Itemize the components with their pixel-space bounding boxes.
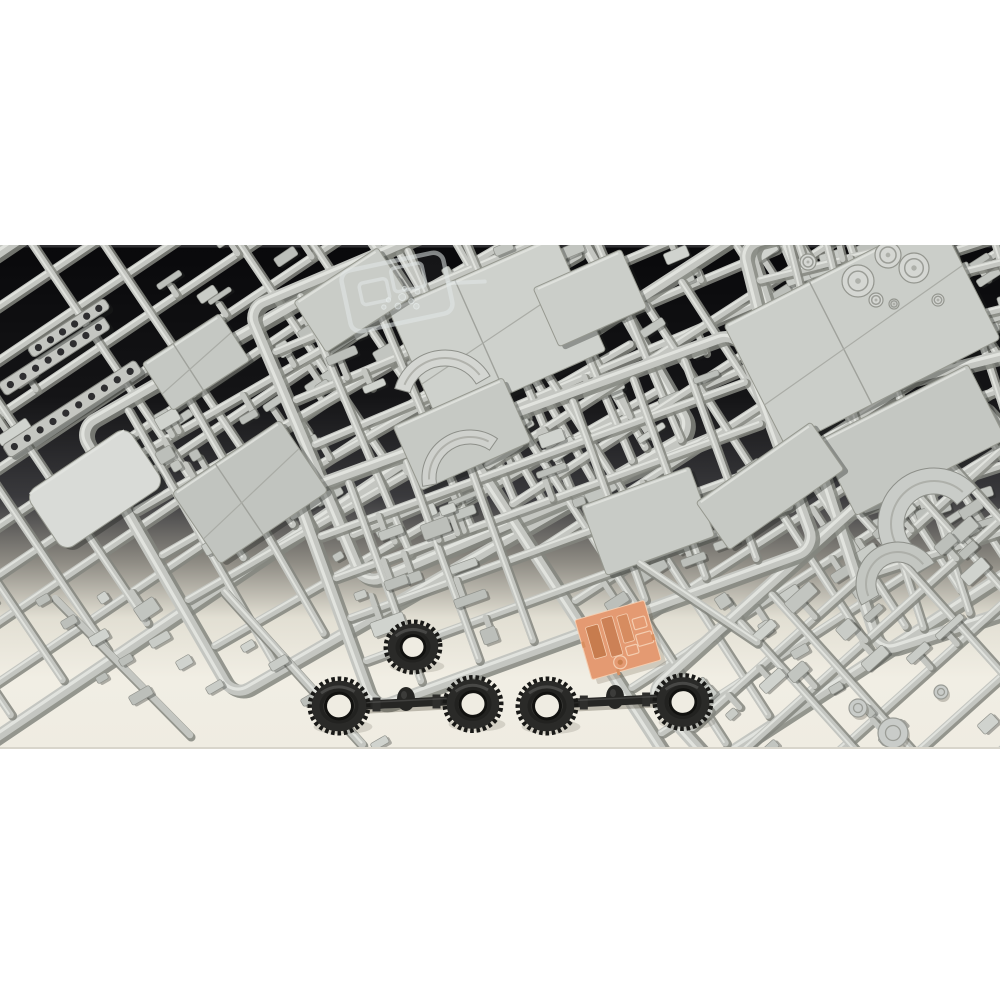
clear-window-part xyxy=(390,262,426,292)
molded-part-shadow xyxy=(547,196,575,217)
clear-lens-part xyxy=(386,297,391,302)
dial-hub xyxy=(886,253,891,258)
molded-part-shadow xyxy=(865,189,885,208)
dial-part xyxy=(869,293,883,307)
axle-bulge-highlight xyxy=(610,689,616,697)
axle-bulge-highlight xyxy=(401,691,407,699)
tire-center-hole xyxy=(459,691,487,718)
gate-stub-shadow xyxy=(631,203,640,225)
screenshot-page xyxy=(0,0,1000,1000)
tire-center-hole xyxy=(400,634,427,660)
molded-part xyxy=(720,212,745,231)
molded-part xyxy=(624,217,648,239)
dial-hub xyxy=(807,261,810,264)
molded-part xyxy=(289,228,304,240)
molded-part xyxy=(936,223,962,241)
molded-part xyxy=(901,768,915,782)
molded-part xyxy=(544,195,572,216)
dial-hub xyxy=(855,278,861,284)
dial-part xyxy=(932,294,944,306)
dial-part xyxy=(800,254,816,270)
dial-hub xyxy=(875,299,878,302)
dial-part xyxy=(875,242,901,268)
hub-disc-face xyxy=(849,699,867,717)
molded-part-shadow xyxy=(939,226,965,244)
gate-stub xyxy=(561,206,570,226)
gate-stub xyxy=(629,201,638,223)
molded-part-shadow xyxy=(295,201,314,217)
gate-stub xyxy=(972,207,977,226)
molded-part-shadow xyxy=(627,219,651,241)
gate-stub-shadow xyxy=(878,197,886,209)
molded-part xyxy=(292,200,311,216)
gate-stub-shadow xyxy=(904,766,911,774)
gate-stub xyxy=(921,221,929,233)
photo-band xyxy=(0,73,1000,905)
sprues-photo-svg xyxy=(0,0,1000,1000)
dial-part xyxy=(889,299,899,309)
clear-lens-part xyxy=(402,286,407,291)
gate-stub xyxy=(876,196,884,208)
axle-center-bulge xyxy=(606,685,624,709)
tire-center-hole xyxy=(532,692,561,720)
molded-part xyxy=(861,187,881,206)
clear-lens-part xyxy=(408,298,414,304)
molded-part-shadow xyxy=(921,178,941,195)
gate-stub-shadow xyxy=(802,786,814,799)
molded-part-shadow xyxy=(958,196,995,213)
gate-stub xyxy=(800,785,812,798)
molded-part-shadow xyxy=(914,201,945,224)
backdrop-bottom-edge xyxy=(0,747,1000,749)
gate-stub-shadow xyxy=(923,222,931,234)
tire-center-hole xyxy=(669,689,697,716)
tire-center-hole xyxy=(324,692,353,720)
clear-lens-part xyxy=(415,289,421,295)
dial-part xyxy=(899,253,929,283)
dial-hub xyxy=(911,265,916,270)
molded-part xyxy=(827,232,849,245)
molded-part-shadow xyxy=(904,769,918,783)
clear-lens-part xyxy=(413,303,420,310)
molded-part xyxy=(799,788,825,813)
clear-window-part xyxy=(358,278,390,305)
molded-part-shadow xyxy=(723,213,748,232)
molded-part xyxy=(918,176,938,193)
molded-part-shadow xyxy=(802,789,828,814)
dial-hub xyxy=(893,303,896,306)
gate-stub-shadow xyxy=(563,208,572,228)
molded-part xyxy=(956,194,993,211)
clear-lens-part xyxy=(381,304,386,309)
axle-center-bulge xyxy=(397,687,415,711)
molded-part xyxy=(911,200,942,223)
hub-disc-face xyxy=(934,685,948,699)
dial-hub xyxy=(937,299,940,302)
dial-part xyxy=(842,265,874,297)
hub-disc-face xyxy=(878,718,908,748)
gate-stub xyxy=(902,766,909,774)
molded-part-shadow xyxy=(292,229,307,241)
gate-stub-shadow xyxy=(974,209,979,228)
product-photo xyxy=(0,0,1000,1000)
